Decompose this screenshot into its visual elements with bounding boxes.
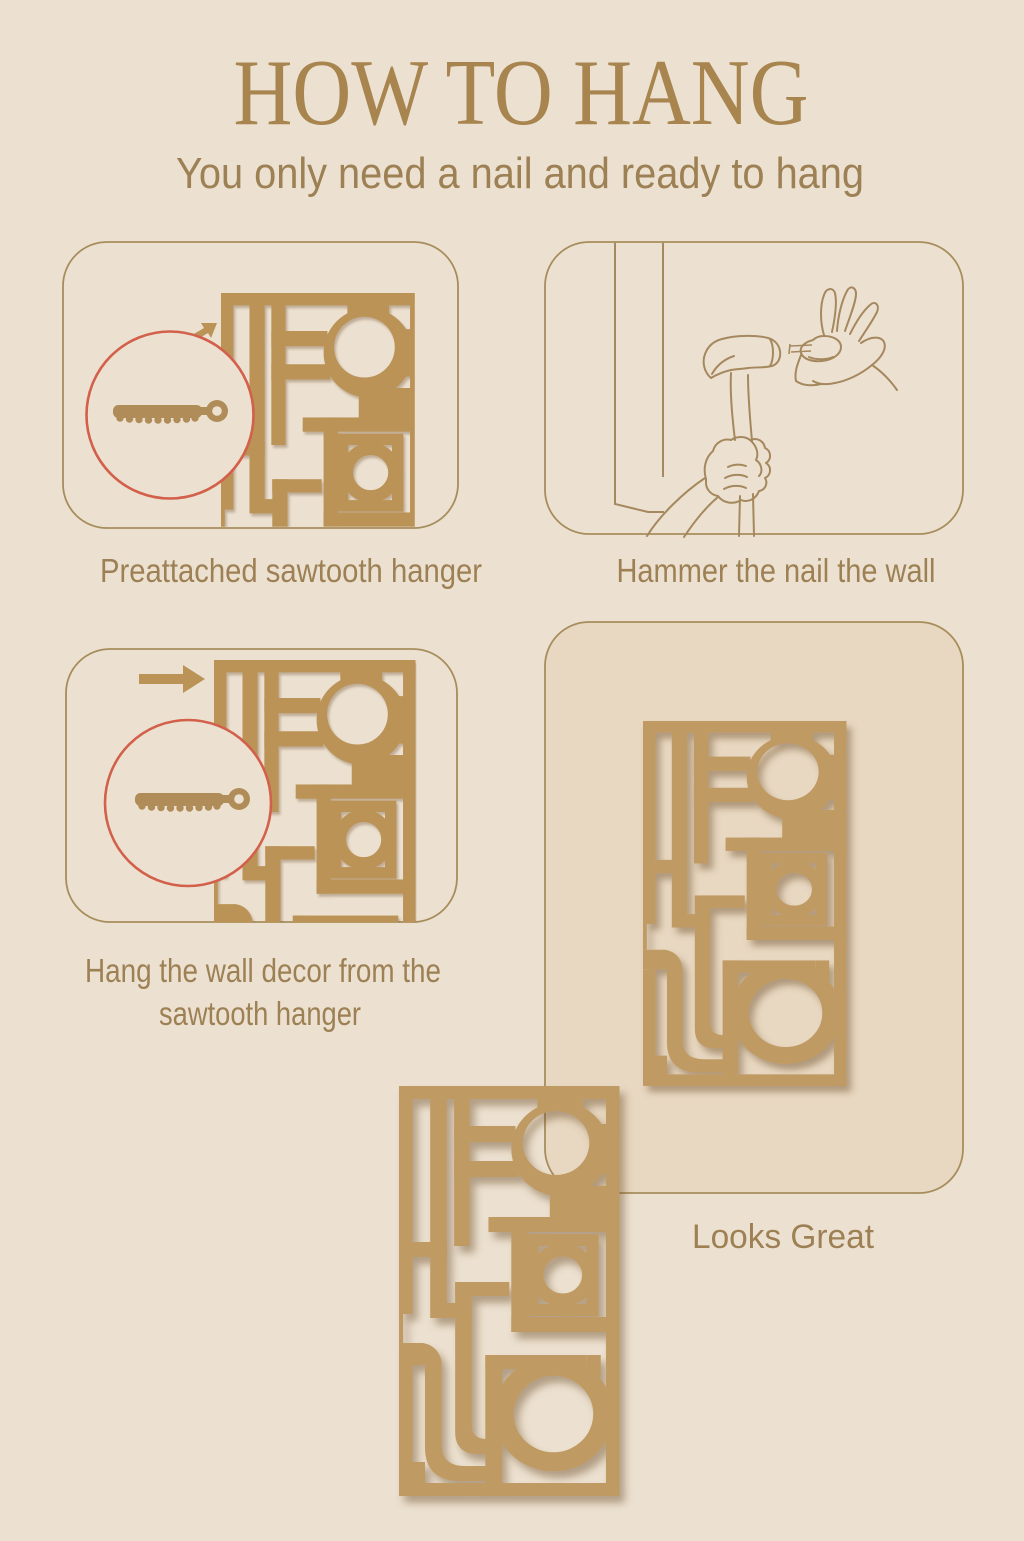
svg-text:sawtooth hanger: sawtooth hanger <box>159 995 361 1032</box>
svg-text:Looks Great: Looks Great <box>692 1218 875 1256</box>
svg-text:Preattached sawtooth hanger: Preattached sawtooth hanger <box>100 552 482 589</box>
svg-text:Hang the wall decor from the: Hang the wall decor from the <box>85 952 441 989</box>
svg-text:You only need a nail and ready: You only need a nail and ready to hang <box>176 149 864 198</box>
svg-text:HOW TO HANG: HOW TO HANG <box>234 41 809 145</box>
svg-text:Hammer the nail the wall: Hammer the nail the wall <box>617 552 936 589</box>
